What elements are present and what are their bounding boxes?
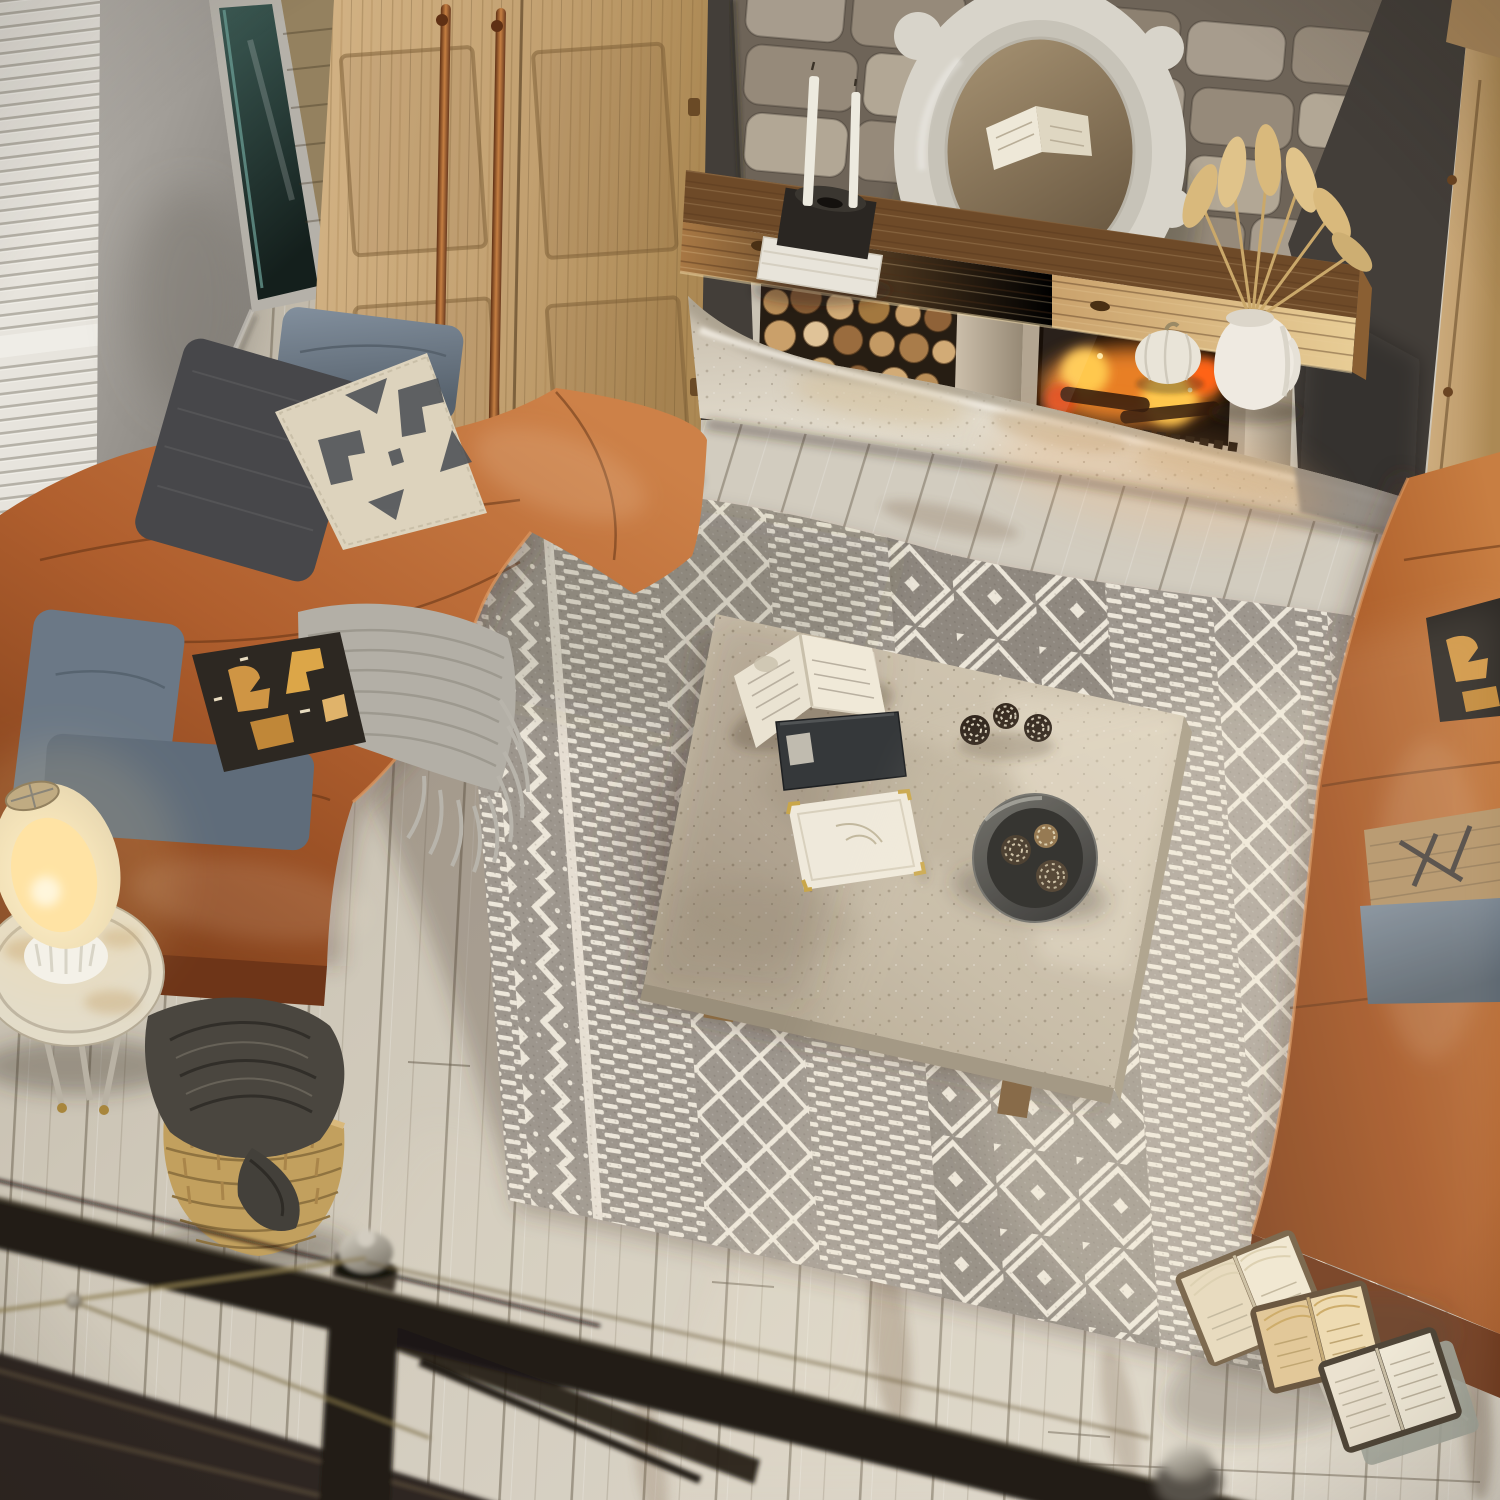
living-room-photo [0, 0, 1500, 1500]
vignette [0, 0, 1500, 1500]
